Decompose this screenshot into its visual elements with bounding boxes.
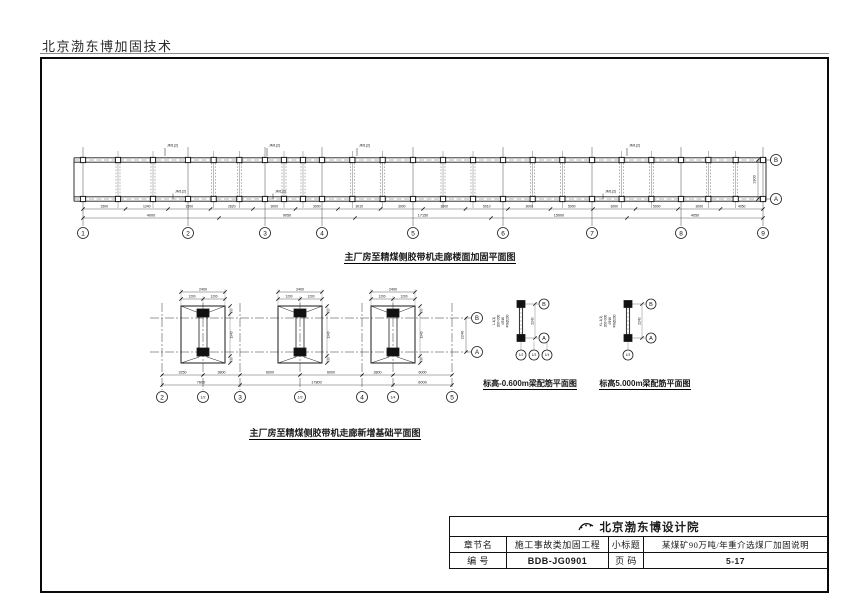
- plan1-grid-bubble-label: 4: [320, 230, 324, 237]
- dim-text: 6000: [419, 371, 427, 375]
- dim-text: 150: [327, 308, 331, 313]
- plan2-drawing: 2400120012001501940150240012001200150194…: [150, 288, 483, 403]
- dim-text: 1200: [378, 295, 385, 299]
- column-node: [237, 196, 242, 201]
- dim-text: 4050: [691, 214, 699, 218]
- line: [181, 306, 199, 313]
- chapter-label: 章节名: [450, 537, 507, 552]
- number-value: BDB-JG0901: [507, 553, 609, 568]
- plan1-grid-bubble-label: 3: [263, 230, 267, 237]
- dim-text: 1940: [420, 331, 424, 338]
- dim-text: 1500: [185, 205, 193, 209]
- title-block-row1: 章节名 施工事故类加固工程 小标题 某煤矿90万吨/年重介选煤厂加固说明: [450, 537, 827, 553]
- column-node: [440, 157, 445, 162]
- page-value: 5-17: [644, 553, 827, 568]
- plan2-grid-bubble-label: 1/2: [201, 395, 206, 399]
- detail2-grid-bubble-label: 1/3: [626, 353, 631, 357]
- column-node: [649, 157, 654, 162]
- column-node: [733, 196, 738, 201]
- column-node: [380, 157, 385, 162]
- column-node: [350, 196, 355, 201]
- dim-text: 1500: [100, 205, 108, 209]
- plan1-drawing: 1500124015002620300030003010300030005010…: [74, 144, 782, 239]
- company-name: 北京渤东博设计院: [600, 519, 700, 535]
- dim-text: 2620: [228, 205, 236, 209]
- detail1-axis-bubble-label: B: [542, 302, 546, 308]
- dim-text: 6000: [418, 381, 426, 385]
- line: [397, 357, 415, 363]
- plan2-grid-bubble-label: 3: [238, 394, 242, 401]
- column-node: [589, 196, 594, 201]
- plan2-title: 主厂房至精煤侧胶带机走廊新增基础平面图: [225, 426, 445, 439]
- dim-text: 6000: [327, 371, 335, 375]
- column-node: [678, 157, 683, 162]
- dim-text: 4050: [738, 205, 746, 209]
- line: [181, 357, 199, 363]
- detail1-grid-bubble-label: 1/4: [545, 353, 550, 357]
- column-node: [380, 196, 385, 201]
- company-logo-icon: [578, 521, 595, 532]
- column-node: [387, 309, 399, 317]
- dim-text: 3000: [313, 205, 321, 209]
- detail1-drawing: L-1(1)200×3004Φ16Φ8@2002240BA1/21/31/4: [492, 299, 552, 360]
- annotation-top: JM1(2): [167, 144, 178, 148]
- annotation-top: JM1(2): [629, 144, 640, 148]
- plan2-grid-bubble-label: 2: [160, 394, 164, 401]
- plan1-grid-bubble-label: 5: [411, 230, 415, 237]
- line: [207, 357, 225, 363]
- column-node: [706, 157, 711, 162]
- plan1-grid-bubble-label: 7: [590, 230, 594, 237]
- line: [304, 357, 322, 363]
- dim-text: 3000: [610, 205, 618, 209]
- detail2-axis-bubble-label: A: [649, 336, 653, 342]
- column-node: [197, 348, 209, 356]
- dim-text: 9050: [283, 214, 291, 218]
- column-node: [115, 196, 120, 201]
- dim-text: 3250: [179, 371, 187, 375]
- dim-text: 5000: [568, 205, 576, 209]
- beam-label: 4Φ16: [608, 317, 612, 325]
- dim-text: 7600: [197, 381, 205, 385]
- dim-text: 2240: [531, 317, 535, 325]
- detail2-axis-bubble-label: B: [649, 302, 653, 308]
- dim-text: 5000: [653, 205, 661, 209]
- dim-text: 2400: [389, 288, 397, 292]
- plan2-grid-bubble-label: 4: [360, 394, 364, 401]
- beam-label: XL-1(1): [599, 316, 603, 327]
- dim-text: 150: [230, 308, 234, 313]
- dim-text: 1240: [143, 205, 151, 209]
- detail2-drawing: XL-1(1)200×3004Φ16Φ8@2002240BA1/3: [599, 299, 656, 360]
- annotation-top: JM1(2): [269, 144, 280, 148]
- subtitle-value: 某煤矿90万吨/年重介选煤厂加固说明: [644, 537, 827, 552]
- plan1-title: 主厂房至精煤侧胶带机走廊楼面加固平面图: [290, 250, 570, 263]
- column-node: [319, 196, 324, 201]
- column-node: [500, 157, 505, 162]
- dim-text: 2400: [296, 288, 304, 292]
- column-node: [80, 157, 85, 162]
- beam-label: Φ8@200: [613, 314, 617, 327]
- column-node: [185, 196, 190, 201]
- column-node: [410, 157, 415, 162]
- column-node: [150, 196, 155, 201]
- column-node: [500, 196, 505, 201]
- line: [278, 357, 296, 363]
- column-node: [733, 157, 738, 162]
- dim-text: 17800: [311, 381, 322, 385]
- column-node: [150, 157, 155, 162]
- column-node: [294, 348, 306, 356]
- dim-text: 3800: [218, 371, 226, 375]
- column-node: [262, 196, 267, 201]
- plan2-axis-bubble-label: A: [475, 350, 479, 356]
- chapter-value: 施工事故类加固工程: [507, 537, 609, 552]
- dim-text: 3000: [270, 205, 278, 209]
- plan2-grid-bubble-label: 1/3: [298, 395, 303, 399]
- detail1-title-text: 标高-0.600m梁配筋平面图: [483, 379, 577, 390]
- dim-text: 15000: [554, 214, 565, 218]
- plan2-axis-bubble-label: B: [475, 316, 479, 322]
- dim-text: 1200: [210, 295, 217, 299]
- column-node: [624, 301, 632, 308]
- title-block: 北京渤东博设计院 章节名 施工事故类加固工程 小标题 某煤矿90万吨/年重介选煤…: [449, 516, 828, 569]
- dim-text: 2400: [199, 288, 207, 292]
- dim-text: 2240: [461, 331, 465, 339]
- column-node: [530, 196, 535, 201]
- dim-text: 1940: [327, 331, 331, 338]
- plan1-grid-bubble-label: 8: [679, 230, 683, 237]
- column-node: [300, 196, 305, 201]
- beam-label: 200×300: [604, 315, 608, 328]
- dim-text: 150: [230, 357, 234, 362]
- plan1-axis-bubble-label: B: [774, 158, 778, 164]
- column-node: [619, 196, 624, 201]
- column-node: [281, 157, 286, 162]
- annotation-bottom: JM1(2): [175, 190, 186, 194]
- column-node: [649, 196, 654, 201]
- drawing-sheet: 北京渤东博加固技术 150012401500262030003000301030…: [0, 0, 863, 609]
- dim-text: 5010: [483, 205, 491, 209]
- line: [207, 306, 225, 313]
- column-node: [319, 157, 324, 162]
- dim-text: 6000: [266, 371, 274, 375]
- annotation-top: JM1(2): [359, 144, 370, 148]
- title-block-row2: 编 号 BDB-JG0901 页 码 5-17: [450, 553, 827, 568]
- title-block-company-row: 北京渤东博设计院: [450, 517, 827, 537]
- annotation-bottom: JM1(2): [605, 190, 616, 194]
- page-label: 页 码: [609, 553, 644, 568]
- column-node: [237, 157, 242, 162]
- dim-text: 3800: [374, 371, 382, 375]
- beam-label: Φ8@200: [506, 314, 510, 327]
- column-node: [410, 196, 415, 201]
- column-node: [624, 335, 632, 342]
- column-node: [211, 157, 216, 162]
- column-node: [387, 348, 399, 356]
- column-node: [470, 196, 475, 201]
- plan1-axis-bubble-label: A: [774, 197, 778, 203]
- dim-text: 1200: [307, 295, 314, 299]
- plan1-grid-bubble-label: 1: [81, 230, 85, 237]
- subtitle-label: 小标题: [609, 537, 644, 552]
- column-node: [300, 157, 305, 162]
- column-node: [197, 309, 209, 317]
- dim-text: 3000: [695, 205, 703, 209]
- column-node: [678, 196, 683, 201]
- dim-text: 17150: [418, 214, 429, 218]
- column-node: [560, 157, 565, 162]
- column-node: [80, 196, 85, 201]
- detail2-title: 标高5.000m梁配筋平面图: [580, 378, 710, 389]
- plan2-title-text: 主厂房至精煤侧胶带机走廊新增基础平面图: [249, 428, 420, 440]
- column-node: [350, 157, 355, 162]
- detail1-grid-bubble-label: 1/3: [532, 353, 537, 357]
- plan1-grid-bubble-label: 9: [761, 230, 765, 237]
- column-node: [470, 157, 475, 162]
- annotation-bottom: JM1(2): [275, 190, 286, 194]
- column-node: [262, 157, 267, 162]
- column-node: [185, 157, 190, 162]
- column-node: [706, 196, 711, 201]
- plan1-grid-bubble-label: 2: [186, 230, 190, 237]
- column-node: [619, 157, 624, 162]
- dim-text: 150: [420, 357, 424, 362]
- dim-text: 3010: [355, 205, 363, 209]
- line: [304, 306, 322, 313]
- line: [371, 357, 389, 363]
- dim-text: 3000: [398, 205, 406, 209]
- dim-text: 3000: [525, 205, 533, 209]
- column-node: [294, 309, 306, 317]
- detail2-title-text: 标高5.000m梁配筋平面图: [599, 379, 690, 390]
- column-node: [760, 196, 765, 201]
- dim-text: 1940: [230, 331, 234, 338]
- column-node: [281, 196, 286, 201]
- detail1-grid-bubble-label: 1/2: [519, 353, 524, 357]
- dim-text: 3000: [440, 205, 448, 209]
- column-node: [530, 157, 535, 162]
- plan1-grid-bubble-label: 6: [501, 230, 505, 237]
- plan2-grid-bubble-label: 5: [450, 394, 454, 401]
- number-label: 编 号: [450, 553, 507, 568]
- detail1-axis-bubble-label: A: [542, 336, 546, 342]
- column-node: [517, 301, 525, 308]
- line: [371, 306, 389, 313]
- detail1-title: 标高-0.600m梁配筋平面图: [460, 378, 600, 389]
- dim-text: 150: [420, 308, 424, 313]
- plan1-title-text: 主厂房至精煤侧胶带机走廊楼面加固平面图: [344, 252, 515, 264]
- column-node: [560, 196, 565, 201]
- line: [397, 306, 415, 313]
- dim-text: 1200: [400, 295, 407, 299]
- dim-text: 2240: [638, 317, 642, 325]
- dim-text: 150: [327, 357, 331, 362]
- beam-label: L-1(1): [492, 317, 496, 326]
- beam-label: 200×300: [497, 315, 501, 328]
- column-node: [589, 157, 594, 162]
- plan2-grid-bubble-label: 1/4: [391, 395, 396, 399]
- column-node: [211, 196, 216, 201]
- line: [278, 306, 296, 313]
- dim-text: 4000: [147, 214, 155, 218]
- dim-text: 1200: [188, 295, 195, 299]
- column-node: [440, 196, 445, 201]
- dim-text: 1200: [285, 295, 292, 299]
- column-node: [115, 157, 120, 162]
- column-node: [517, 335, 525, 342]
- beam-label: 4Φ16: [501, 317, 505, 325]
- column-node: [760, 157, 765, 162]
- dim-text: 1900: [753, 175, 757, 183]
